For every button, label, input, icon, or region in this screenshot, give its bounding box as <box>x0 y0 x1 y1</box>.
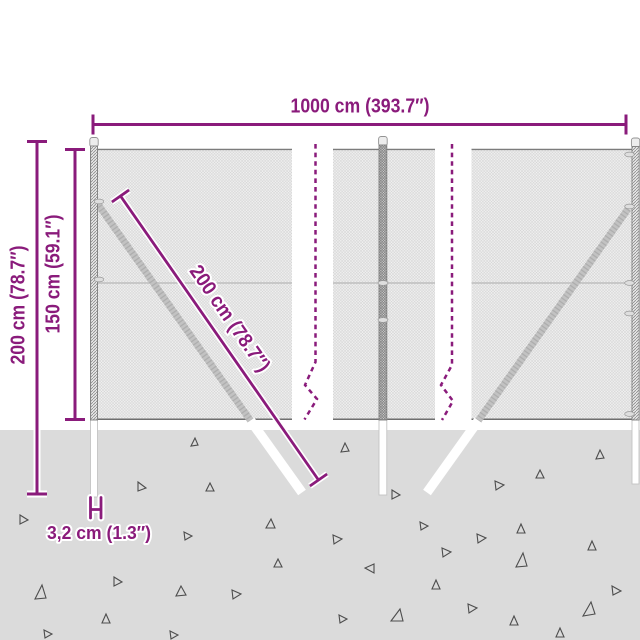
svg-text:200 cm (78.7″): 200 cm (78.7″) <box>8 246 30 365</box>
svg-text:150 cm (59.1″): 150 cm (59.1″) <box>43 215 65 334</box>
svg-text:3,2 cm (1.3″): 3,2 cm (1.3″) <box>47 522 151 543</box>
svg-text:1000 cm (393.7″): 1000 cm (393.7″) <box>291 95 430 118</box>
